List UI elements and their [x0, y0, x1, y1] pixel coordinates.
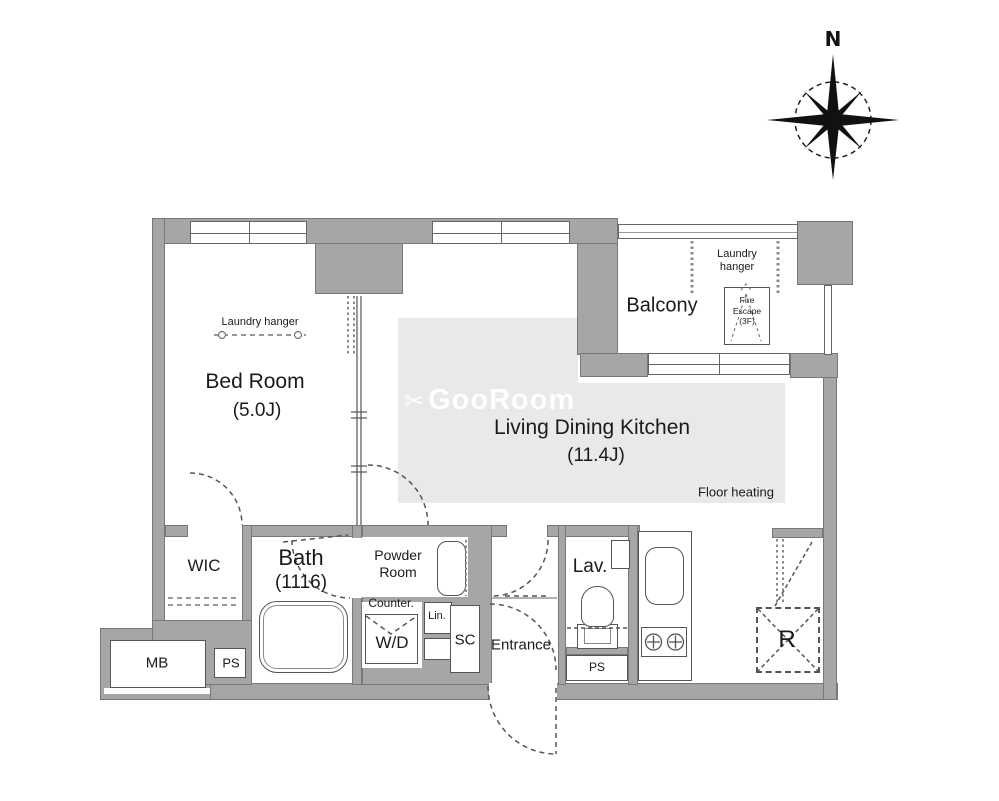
bath-door-diag [283, 535, 348, 542]
balcony-label: Balcony [626, 295, 697, 318]
floor-plan: Bed Room (5.0J) Living Dining Kitchen (1… [0, 0, 999, 801]
bedroom-hanger-ring-left [219, 332, 226, 339]
fire-escape-line3: (3F) [724, 316, 770, 327]
bath-size-label: (1116) [275, 572, 327, 594]
compass-north-label: N [825, 28, 842, 51]
watermark: ✂GooRoom [404, 384, 575, 417]
shoe-closet-label: SC [455, 632, 476, 649]
meter-box-label: MB [146, 655, 169, 672]
fire-escape-line2: Escape [724, 306, 770, 317]
refrigerator-label: R [778, 626, 795, 654]
watermark-text: GooRoom [428, 384, 575, 416]
stove-burner-right-cross [669, 636, 682, 649]
hall-door-arc [492, 540, 548, 596]
ldk-size-label: (11.4J) [567, 445, 625, 467]
fridge-corner-diag [775, 542, 812, 606]
bedroom-size-label: (5.0J) [233, 400, 282, 422]
lavatory-label: Lav. [573, 556, 608, 578]
compass-main-points [767, 54, 899, 180]
wic-label: WIC [187, 556, 220, 576]
bedroom-hanger-ring-right [295, 332, 302, 339]
powder-room-label: Powder Room [363, 547, 433, 581]
wd-folding-door [366, 616, 417, 634]
compass-rose: N [766, 28, 900, 184]
stove-burner-left-cross [647, 636, 660, 649]
fire-escape-apex [741, 284, 751, 290]
powder-door-arc [368, 465, 428, 525]
bedroom-laundry-hanger-label: Laundry hanger [221, 316, 298, 328]
balcony-laundry-hanger-label: Laundry hanger [708, 248, 766, 274]
bedroom-label: Bed Room [205, 370, 304, 394]
fire-escape-label: Fire Escape (3F) [724, 295, 770, 327]
linen-label: Lin. [428, 610, 446, 622]
washer-dryer-label: W/D [375, 633, 408, 653]
wic-door-arc [190, 473, 242, 525]
floor-heating-label: Floor heating [698, 485, 774, 500]
ldk-label: Living Dining Kitchen [494, 416, 690, 440]
fire-escape-line1: Fire [724, 295, 770, 306]
pipe-space-right-label: PS [589, 660, 605, 674]
entrance-outer-arc [488, 686, 556, 754]
bath-label: Bath [278, 545, 323, 571]
pipe-space-left-label: PS [222, 656, 239, 671]
counter-label: Counter. [368, 596, 413, 610]
watermark-scissors-icon: ✂ [404, 388, 425, 415]
entrance-label: Entrance [491, 637, 551, 654]
